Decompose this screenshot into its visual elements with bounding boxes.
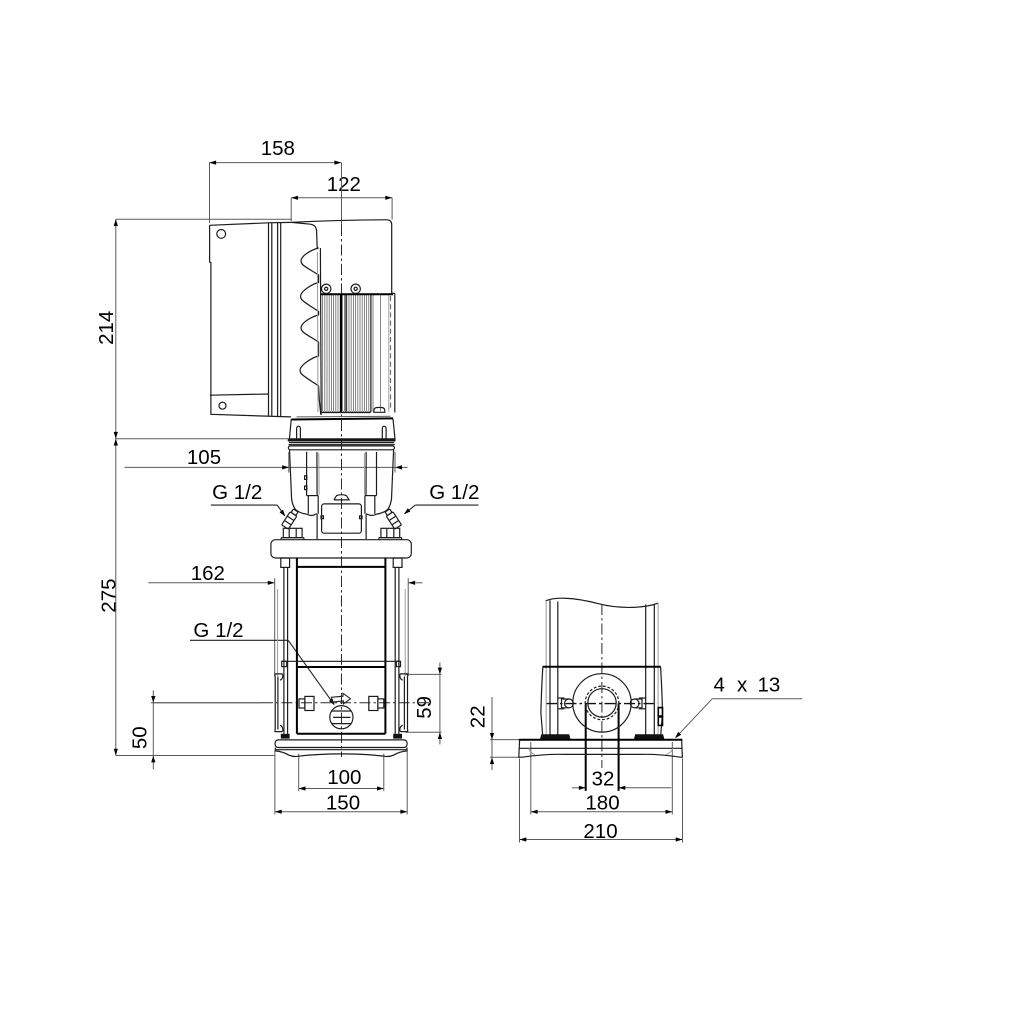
svg-text:105: 105 bbox=[187, 446, 221, 469]
svg-text:214: 214 bbox=[95, 311, 118, 345]
svg-text:158: 158 bbox=[261, 137, 295, 160]
svg-text:G 1/2: G 1/2 bbox=[429, 481, 479, 504]
svg-text:32: 32 bbox=[592, 767, 615, 790]
svg-text:100: 100 bbox=[327, 766, 361, 789]
svg-text:G 1/2: G 1/2 bbox=[193, 619, 243, 642]
svg-text:4: 4 bbox=[714, 674, 725, 697]
svg-text:13: 13 bbox=[758, 674, 781, 697]
svg-text:x: x bbox=[737, 674, 748, 697]
svg-text:180: 180 bbox=[585, 791, 619, 814]
svg-text:50: 50 bbox=[129, 726, 152, 749]
svg-text:122: 122 bbox=[327, 173, 361, 196]
svg-text:22: 22 bbox=[467, 705, 490, 728]
svg-text:162: 162 bbox=[191, 562, 225, 585]
svg-text:59: 59 bbox=[413, 696, 436, 719]
svg-text:G 1/2: G 1/2 bbox=[212, 481, 262, 504]
svg-text:275: 275 bbox=[97, 578, 120, 612]
